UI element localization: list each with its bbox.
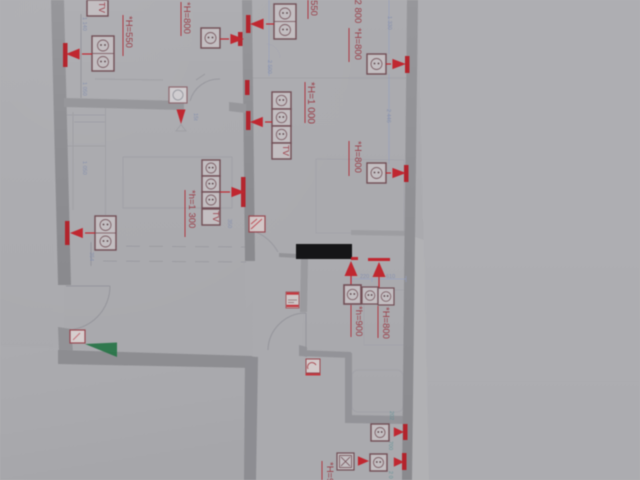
svg-text:610: 610 xyxy=(386,274,395,280)
svg-text:15t: 15t xyxy=(192,113,198,121)
svg-text:202: 202 xyxy=(388,411,394,420)
svg-text:*H=800: *H=800 xyxy=(352,28,363,60)
svg-text:TV: TV xyxy=(97,2,107,13)
svg-text:*h=1 300: *h=1 300 xyxy=(186,190,197,228)
svg-text:=2 800: =2 800 xyxy=(352,0,363,23)
svg-text:2 0: 2 0 xyxy=(387,471,393,479)
svg-text:1 330: 1 330 xyxy=(386,16,392,30)
svg-text:TV: TV xyxy=(281,145,291,156)
svg-text:*H=800: *H=800 xyxy=(380,307,391,339)
svg-text:220: 220 xyxy=(360,274,369,280)
svg-text:*H=800: *H=800 xyxy=(352,141,363,173)
svg-text:350: 350 xyxy=(226,219,232,228)
svg-text:1 050: 1 050 xyxy=(81,161,87,175)
svg-text:*H=550: *H=550 xyxy=(308,0,319,16)
svg-text:700: 700 xyxy=(387,441,393,450)
svg-text:354: 354 xyxy=(88,252,94,261)
svg-text:*H=800: *H=800 xyxy=(181,2,192,34)
svg-text:1 140: 1 140 xyxy=(81,17,87,31)
svg-text:2 446: 2 446 xyxy=(385,109,391,123)
svg-text:2 500: 2 500 xyxy=(266,60,272,74)
svg-text:*H=1 000: *H=1 000 xyxy=(305,82,316,124)
svg-text:TV: TV xyxy=(211,211,221,222)
svg-text:*H=550: *H=550 xyxy=(123,16,134,48)
svg-text:1 050: 1 050 xyxy=(81,82,87,96)
svg-text:*H=90: *H=90 xyxy=(324,462,335,480)
svg-text:*h=900: *h=900 xyxy=(353,306,364,336)
